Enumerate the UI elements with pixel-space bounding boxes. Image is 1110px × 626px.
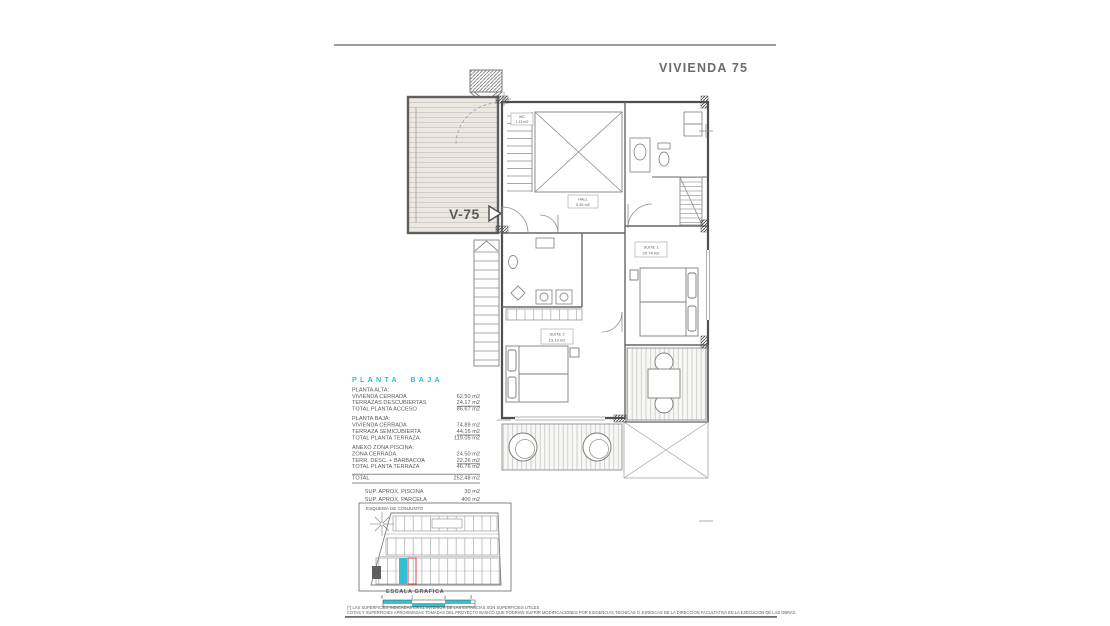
section-title: ANEXO ZONA PISCINA:	[352, 445, 480, 451]
scale-tick: 1	[411, 595, 414, 600]
room-name: WC	[519, 115, 525, 119]
site-plan: ESQUEMA DE CONJUNTO	[359, 503, 511, 591]
row-value: 400 m2	[461, 497, 480, 503]
ensuite-fixtures	[630, 112, 702, 172]
row-value: 44.16 m2	[457, 429, 480, 436]
row-value: 30 m2	[464, 489, 480, 495]
section-title: PLANTA BAJA:	[352, 416, 480, 422]
total-label: TOTAL	[352, 475, 370, 481]
room-label-hall: HALL 5.35 m2	[568, 195, 598, 208]
row-value: 86.67 m2	[457, 407, 480, 413]
floor-plan-drawing: V-75	[0, 0, 1110, 626]
room-area: 20.74 m2	[643, 251, 660, 256]
room-name: HALL	[578, 198, 588, 202]
scale-label: ESCALA GRAFICA	[386, 589, 444, 595]
scale-tick: 2	[444, 595, 447, 600]
wardrobe	[680, 177, 702, 225]
row-value: 119.05 m2	[454, 435, 480, 441]
table-row: TOTAL PLANTA ACCESO 86.67 m2	[352, 407, 480, 413]
table-section-planta-alta: PLANTA ALTA: VIVIENDA CERRADA 62.50 m2 T…	[352, 387, 480, 413]
bathroom-fixtures	[509, 238, 573, 304]
room-label-wc: WC 1.11 m2	[511, 113, 533, 125]
room-area: 1.11 m2	[516, 120, 529, 124]
row-label: SUP. APROX. PARCELA	[365, 497, 427, 503]
table-row-parcela: SUP. APROX. PARCELA 400 m2	[352, 497, 480, 503]
table-section-planta-baja: PLANTA BAJA: VIVIENDA CERRADA 74.89 m2 T…	[352, 416, 480, 442]
row-value: 24.17 m2	[457, 400, 480, 407]
surface-area-table: PLANTA BAJA PLANTA ALTA: VIVIENDA CERRAD…	[352, 377, 480, 503]
scale-tick: 0	[381, 595, 384, 600]
row-label: SUP. APROX. PISCINA	[365, 489, 424, 495]
row-label: TOTAL PLANTA TERRAZA	[352, 435, 420, 441]
suite1-bed	[630, 268, 698, 336]
suite2-bed	[506, 346, 579, 402]
room-name: SUITE 1	[643, 245, 659, 250]
site-plan-title: ESQUEMA DE CONJUNTO	[366, 506, 424, 511]
pergola-area	[624, 422, 708, 478]
room-label-suite2: SUITE 2 13.19 m2	[541, 329, 573, 344]
room-label-suite1: SUITE 1 20.74 m2	[635, 242, 667, 257]
row-label: TOTAL PLANTA ACCESO	[352, 407, 417, 413]
table-heading: PLANTA BAJA	[352, 377, 480, 383]
suite2-wardrobe	[506, 309, 582, 320]
table-total-row: TOTAL 252.48 m2	[352, 473, 480, 483]
row-value: 22.26 m2	[457, 457, 480, 464]
unit-label: V-75	[449, 206, 480, 222]
table-row: TERRAZAS DESCUBIERTAS 24.17 m2	[352, 400, 480, 407]
section-title: PLANTA ALTA:	[352, 387, 480, 393]
room-name: SUITE 2	[549, 332, 565, 337]
table-row: TERRAZA SEMICUBIERTA 44.16 m2	[352, 429, 480, 436]
table-row: TERR. DESC. + BARBACOA 22.26 m2	[352, 457, 480, 464]
row-label: TERRAZAS DESCUBIERTAS	[352, 400, 426, 407]
table-row-piscina: SUP. APROX. PISCINA 30 m2	[352, 489, 480, 495]
row-label: TOTAL PLANTA TERRAZA	[352, 464, 420, 470]
terrace-dining	[627, 348, 706, 420]
table-row: TOTAL PLANTA TERRAZA 119.05 m2	[352, 435, 480, 441]
plan-sheet: VIVIENDA 75	[0, 0, 1110, 626]
row-value: 46.76 m2	[457, 464, 480, 470]
row-label: TERRAZA SEMICUBIERTA	[352, 429, 421, 436]
exterior-stairs	[474, 240, 499, 366]
total-value: 252.48 m2	[454, 475, 480, 481]
room-area: 13.19 m2	[549, 338, 566, 343]
table-section-anexo-piscina: ANEXO ZONA PISCINA: ZONA CERRADA 24.50 m…	[352, 445, 480, 471]
highlighted-plot	[399, 558, 407, 584]
room-area: 5.35 m2	[576, 203, 590, 207]
footnotes: (*) LAS SUPERFICIES INDICADAS EN EL INTE…	[345, 605, 796, 618]
table-row: TOTAL PLANTA TERRAZA 46.76 m2	[352, 464, 480, 470]
scale-tick: 3	[470, 595, 473, 600]
footnote-line2: COTAS Y SUPERFICIES APROXIMADAS TOMADAS …	[347, 610, 796, 615]
terrace-loungers	[502, 424, 622, 470]
row-label: TERR. DESC. + BARBACOA	[352, 457, 425, 464]
bottom-rule	[345, 616, 777, 618]
